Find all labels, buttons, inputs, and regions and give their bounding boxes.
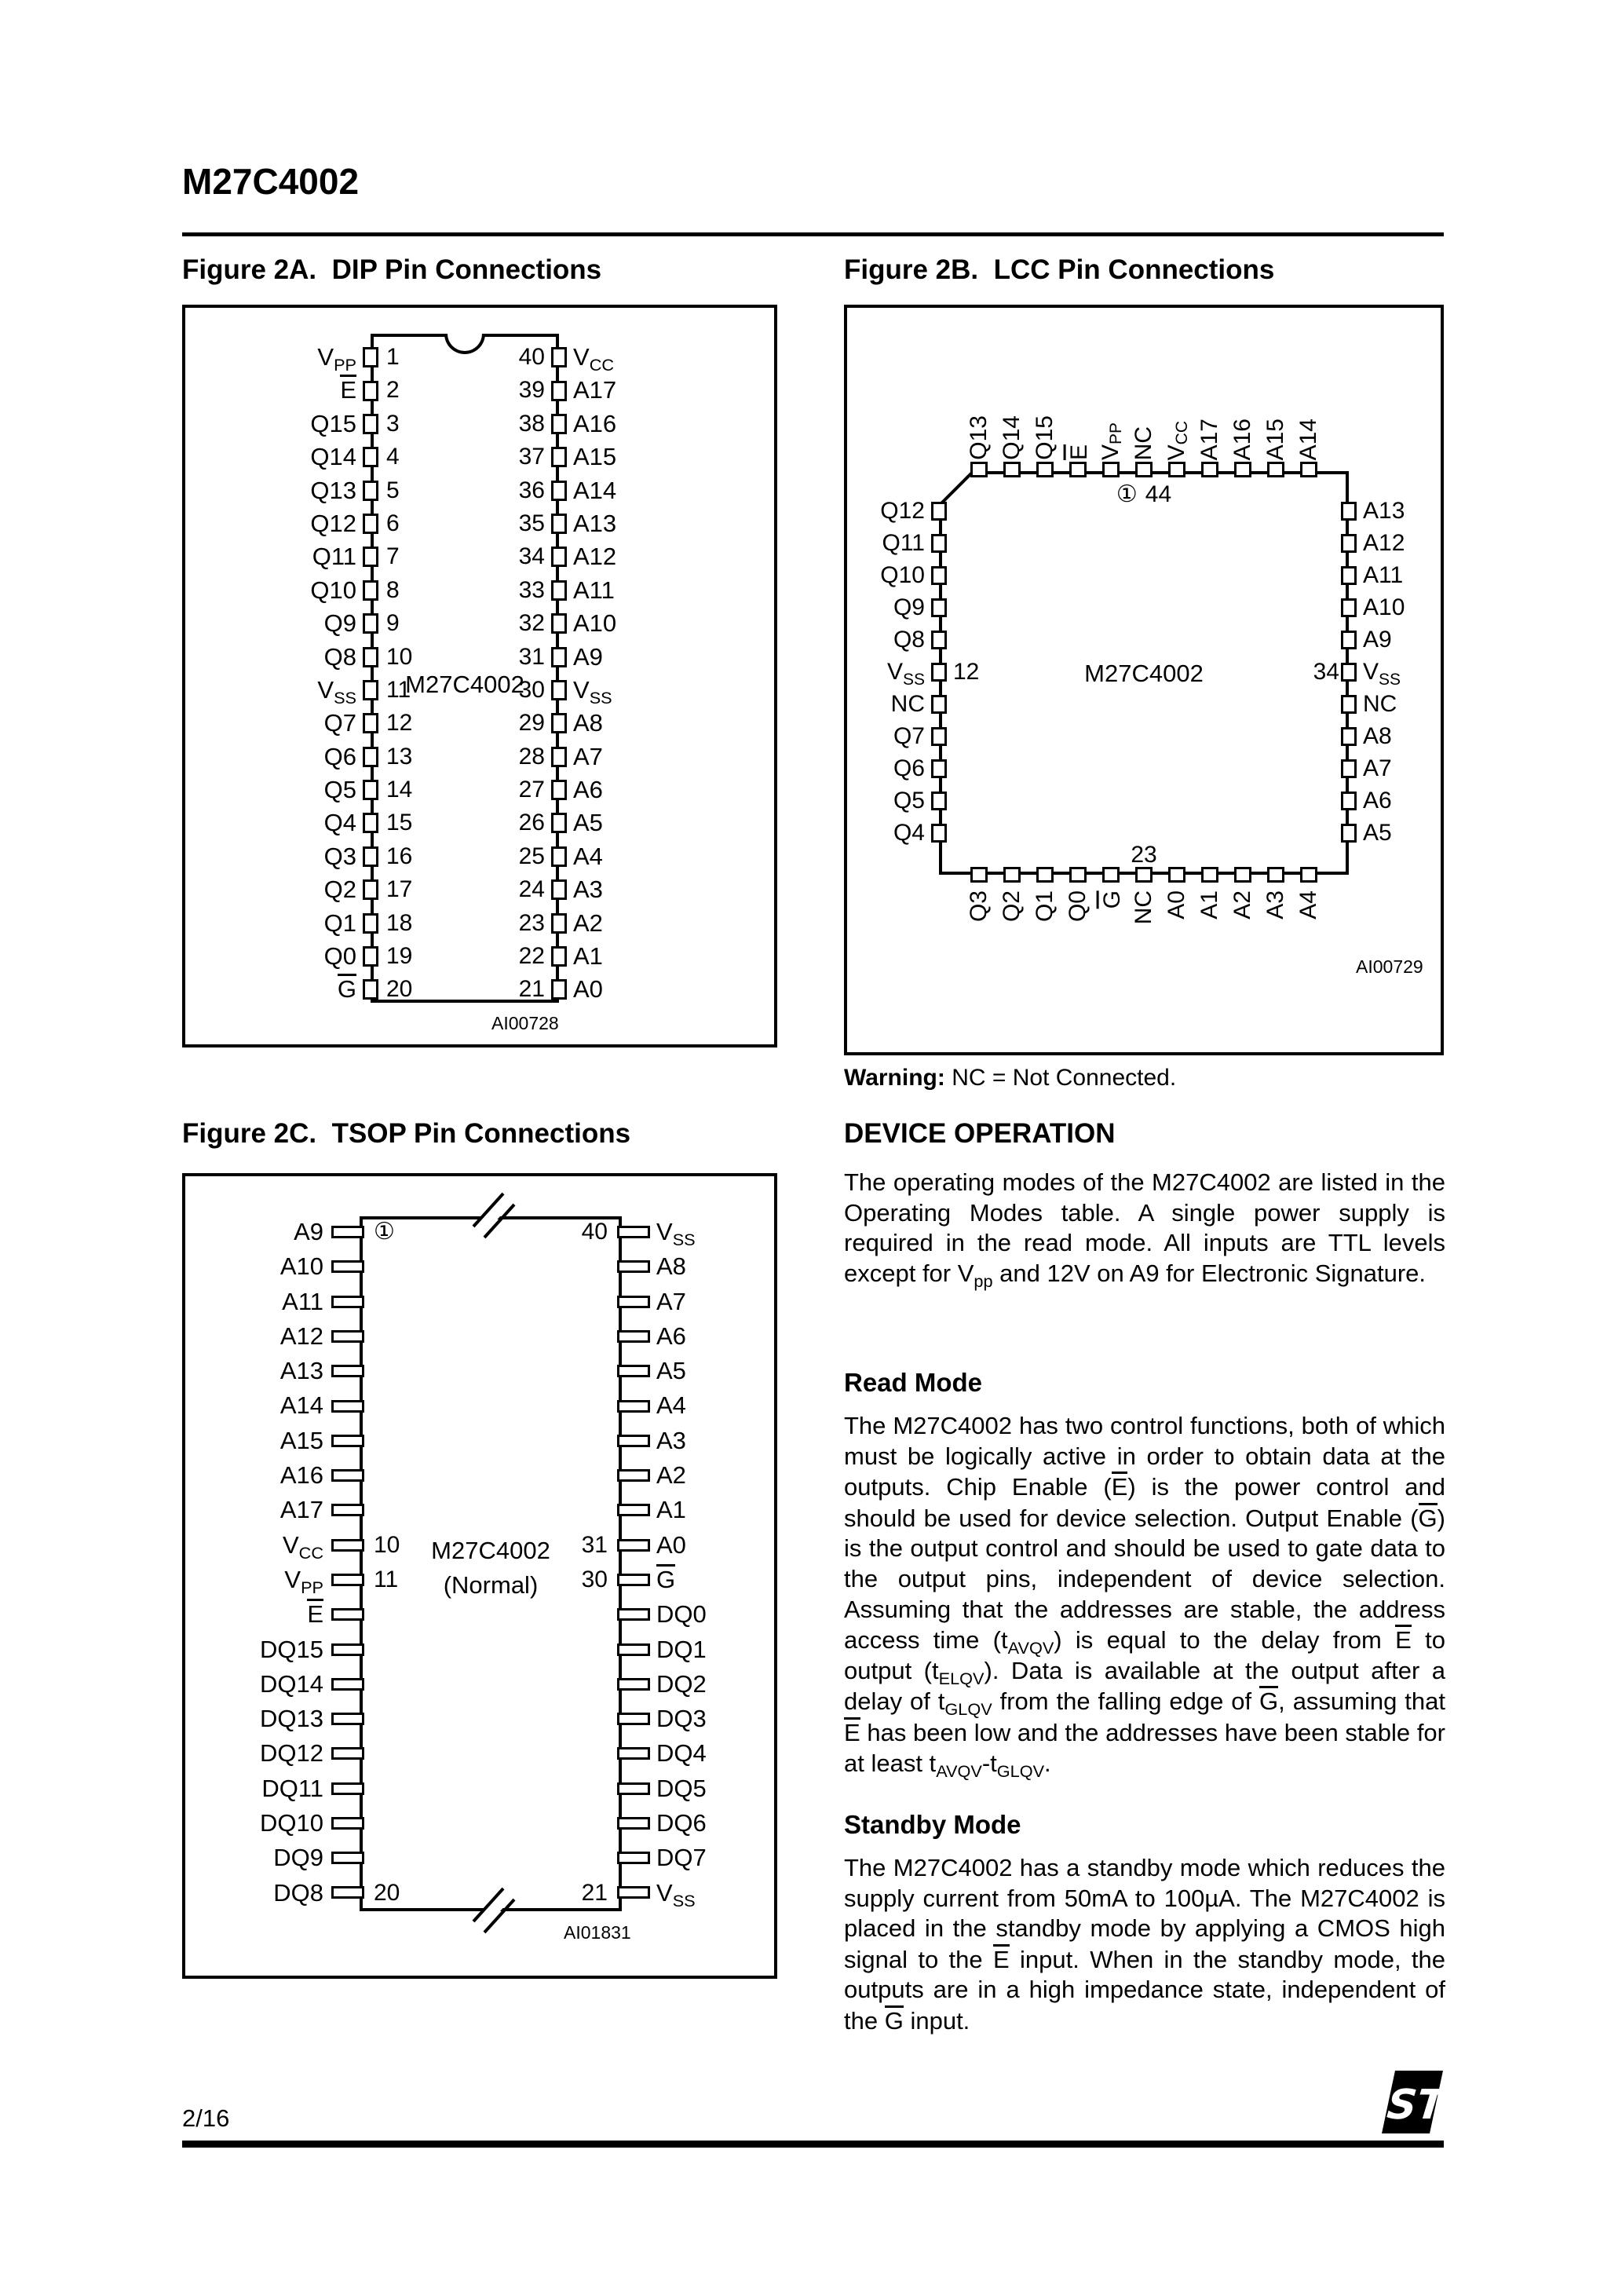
pin-icon (331, 1365, 364, 1377)
lcc-chip-label: M27C4002 (939, 660, 1349, 688)
package-break-icon (444, 1192, 546, 1247)
pin-label: A9 (185, 1215, 323, 1249)
pin-icon (1234, 462, 1251, 477)
figure-2b-title: Figure 2B. LCC Pin Connections (844, 254, 1274, 286)
pin-label: A9 (573, 641, 616, 674)
pin-number: 5 (386, 474, 412, 507)
pin-icon (1102, 867, 1120, 883)
figure-2b-box: Q13Q14Q15EVPPNCVCCA17A16A15A14 ①44 Q12Q1… (844, 305, 1444, 1055)
pin-number (953, 720, 979, 752)
pin-number (557, 1806, 608, 1841)
pin-icon (970, 462, 988, 477)
pin-label: Q15 (1032, 415, 1058, 460)
pin-icon (551, 913, 567, 934)
pin-icon (970, 867, 988, 883)
figure-2c-title: Figure 2C. TSOP Pin Connections (182, 1118, 630, 1150)
pin-label: VPP (185, 341, 356, 374)
pin-icon (1201, 462, 1218, 477)
pin-icon (363, 813, 378, 833)
pin-number (374, 1458, 400, 1493)
pin-label: A4 (656, 1388, 707, 1423)
pin-label: VPP (185, 1563, 323, 1597)
pin-icon (363, 747, 378, 767)
footer-rule (182, 2141, 1444, 2148)
pin-number (557, 1354, 608, 1388)
pin-label: NC (1131, 426, 1156, 460)
pin-number: 16 (386, 840, 412, 873)
pin-label: Q7 (847, 720, 925, 752)
pin-label: A15 (573, 441, 616, 473)
pin-icon (363, 481, 378, 501)
pin-number (557, 1285, 608, 1319)
pin-label: VCC (185, 1528, 323, 1563)
pin-number: 7 (386, 540, 412, 573)
pin-label: Q6 (847, 752, 925, 784)
pin-icon (551, 347, 567, 367)
pin-icon (617, 1643, 650, 1656)
pin-number (557, 1736, 608, 1771)
pin-label: Q14 (185, 441, 356, 473)
pin-label: A8 (656, 1249, 707, 1284)
pin-label: A2 (656, 1458, 707, 1493)
pin-label: DQ8 (185, 1876, 323, 1910)
pin-icon (617, 1852, 650, 1864)
pin-label: Q4 (185, 806, 356, 839)
st-logo-text: ST (1385, 2082, 1443, 2129)
lcc-right-labels: A13A12A11A10A9VSSNCA8A7A6A5 (1363, 495, 1405, 849)
pin-icon (363, 580, 378, 601)
pin-label-slot: A15 (1267, 419, 1284, 460)
pin-number: 37 (493, 441, 545, 473)
pin-number: 40 (493, 341, 545, 374)
pin-number: 35 (493, 507, 545, 540)
pin-icon (363, 613, 378, 634)
pin-number: 6 (386, 507, 412, 540)
pin-label-slot: A16 (1234, 419, 1251, 460)
pin-label: E (1064, 444, 1092, 460)
pin-label: Q13 (185, 474, 356, 507)
pin-label: Q11 (847, 527, 925, 559)
lcc-left-labels: Q12Q11Q10Q9Q8VSSNCQ7Q6Q5Q4 (847, 495, 925, 849)
pin-icon (617, 1886, 650, 1899)
standby-mode-heading: Standby Mode (844, 1810, 1021, 1840)
pin44-number: 44 (1145, 481, 1171, 507)
pin-label: DQ13 (185, 1702, 323, 1736)
pin-number: 28 (493, 740, 545, 773)
pin-number: 38 (493, 408, 545, 441)
pin-number: 26 (493, 806, 545, 839)
pin-label: Q12 (185, 507, 356, 540)
pin-icon (931, 631, 947, 649)
dip-left-labels: VPPEQ15Q14Q13Q12Q11Q10Q9Q8VSSQ7Q6Q5Q4Q3Q… (185, 341, 356, 1007)
pin-label-slot: Q13 (970, 415, 988, 460)
standby-mode-paragraph: The M27C4002 has a standby mode which re… (844, 1853, 1445, 2037)
pin-icon (931, 502, 947, 521)
pin-icon (1036, 462, 1054, 477)
pin-number (374, 1424, 400, 1458)
pin-icon (331, 1852, 364, 1864)
pin-icon (617, 1469, 650, 1482)
dip-right-labels: VCCA17A16A15A14A13A12A11A10A9VSSA8A7A6A5… (573, 341, 616, 1007)
pin-number: 3 (386, 408, 412, 441)
pin-icon (331, 1260, 364, 1273)
pin-label: Q1 (185, 907, 356, 940)
pin-label-slot: VCC (1168, 421, 1185, 460)
lcc-pin1-row: ①44 (939, 481, 1349, 508)
pin-label-slot: VPP (1102, 422, 1120, 460)
pin-number: 15 (386, 806, 412, 839)
pin-label-slot: Q0 (1069, 890, 1087, 922)
pin-label: DQ14 (185, 1667, 323, 1702)
pin-label: A14 (1296, 419, 1321, 460)
pin-number (1295, 623, 1339, 656)
pin-label: A3 (1263, 890, 1288, 919)
pin-number (557, 1667, 608, 1702)
pin-label-slot: A0 (1168, 890, 1185, 919)
pin-number (557, 1632, 608, 1667)
pin-icon (1069, 462, 1087, 477)
pin-number (557, 1458, 608, 1493)
page-number: 2/16 (182, 2104, 229, 2133)
pin-number: 20 (374, 1876, 400, 1910)
pin-label-slot: G (1102, 890, 1120, 909)
pin-number: 13 (386, 740, 412, 773)
pin-label: A7 (656, 1285, 707, 1319)
pin-label: DQ12 (185, 1736, 323, 1771)
pin-number: 40 (557, 1215, 608, 1249)
pin-label: A5 (656, 1354, 707, 1388)
pin-label: A11 (573, 574, 616, 607)
pin-label-slot: NC (1135, 426, 1153, 460)
pin-number (374, 1319, 400, 1354)
pin-label: A4 (573, 840, 616, 873)
pin-label: DQ6 (656, 1806, 707, 1841)
pin-number: 20 (386, 973, 412, 1006)
pin-number (374, 1667, 400, 1702)
pin-label: A16 (1230, 419, 1255, 460)
pin-number (953, 591, 979, 623)
pin-icon (1267, 867, 1284, 883)
pin-icon (617, 1782, 650, 1795)
figure-2a-title: Figure 2A. DIP Pin Connections (182, 254, 601, 286)
pin-label: Q9 (847, 591, 925, 623)
pin-label: A10 (1363, 591, 1405, 623)
tsop-left-labels: A9A10A11A12A13A14A15A16A17VCCVPPEDQ15DQ1… (185, 1215, 323, 1910)
pin-label: A16 (573, 408, 616, 441)
pin-icon (1069, 867, 1087, 883)
pin-label: E (185, 1597, 323, 1632)
pin-label: A12 (573, 540, 616, 573)
pin-icon (931, 534, 947, 553)
pin-label: A5 (573, 806, 616, 839)
warning-note: Warning: NC = Not Connected. (844, 1065, 1176, 1091)
device-operation-heading: DEVICE OPERATION (844, 1118, 1116, 1150)
pin-label: A17 (573, 374, 616, 407)
pin-label: Q10 (185, 574, 356, 607)
pin-label: Q8 (847, 623, 925, 656)
pin-label: A6 (656, 1319, 707, 1354)
pin-icon (1135, 462, 1153, 477)
pin-icon (617, 1435, 650, 1447)
pin-number (557, 1702, 608, 1736)
pin-icon (1300, 867, 1317, 883)
pin-label: A6 (1363, 784, 1405, 817)
pin-number: 14 (386, 773, 412, 806)
pin-label-slot: E (1069, 444, 1087, 460)
pin-number (953, 527, 979, 559)
read-mode-paragraph: The M27C4002 has two control functions, … (844, 1411, 1445, 1779)
package-break-icon (444, 1887, 546, 1942)
pin-label: A3 (656, 1424, 707, 1458)
pin-label: E (185, 374, 356, 407)
pin-icon (331, 1782, 364, 1795)
pin-icon (551, 813, 567, 833)
pin-number: 10 (386, 641, 412, 674)
pin-icon (617, 1747, 650, 1760)
pin-icon (931, 824, 947, 843)
pin-label: A8 (573, 707, 616, 740)
pin-label: VSS (656, 1215, 707, 1249)
pin-label: Q7 (185, 707, 356, 740)
pin-label: A0 (573, 973, 616, 1006)
pin-icon (363, 946, 378, 967)
pin-label: Q2 (185, 873, 356, 906)
pin-number: 27 (493, 773, 545, 806)
device-operation-intro: The operating modes of the M27C4002 are … (844, 1168, 1445, 1289)
pin-icon (331, 1400, 364, 1413)
pin-label: DQ9 (185, 1841, 323, 1875)
pin-label: A0 (1164, 890, 1189, 919)
pin-icon (331, 1817, 364, 1830)
figure-2c-code: AI01831 (564, 1922, 631, 1943)
pin-icon (1341, 695, 1357, 714)
pin-label: Q10 (847, 559, 925, 591)
pin-label: Q5 (847, 784, 925, 817)
pin-label: A13 (573, 507, 616, 540)
pin-label: A11 (1363, 559, 1405, 591)
tsop-chip-label-line2: (Normal) (360, 1568, 622, 1603)
figure-2b-code: AI00729 (1356, 956, 1423, 978)
pin-number (374, 1806, 400, 1841)
pin-icon (617, 1539, 650, 1552)
figure-2a-box: VPPEQ15Q14Q13Q12Q11Q10Q9Q8VSSQ7Q6Q5Q4Q3Q… (182, 305, 777, 1047)
lcc-top-labels: Q13Q14Q15EVPPNCVCCA17A16A15A14 (970, 333, 1317, 460)
pin-icon (363, 647, 378, 667)
pin-number: 23 (493, 907, 545, 940)
lcc-bottom-pins (970, 867, 1317, 883)
pin-label: A15 (185, 1424, 323, 1458)
pin-icon (363, 913, 378, 934)
lcc-bottom-labels: Q3Q2Q1Q0GNCA0A1A2A3A4 (970, 890, 1317, 924)
pin-icon (617, 1574, 650, 1586)
pin-number: 31 (493, 641, 545, 674)
pin-label: A0 (656, 1528, 707, 1563)
pin-number: 21 (557, 1876, 608, 1910)
pin-label: A14 (185, 1388, 323, 1423)
pin-icon (617, 1296, 650, 1308)
pin-label: Q0 (185, 940, 356, 973)
pin-number (953, 784, 979, 817)
pin-icon (617, 1260, 650, 1273)
pin-label: Q9 (185, 607, 356, 640)
pin-label-slot: NC (1135, 890, 1153, 924)
pin-number: 36 (493, 474, 545, 507)
pin-icon (931, 566, 947, 585)
pin-number: 34 (493, 540, 545, 573)
pin-label: NC (1131, 890, 1156, 924)
pin-icon (331, 1678, 364, 1691)
pin-number: 29 (493, 707, 545, 740)
pin-icon (931, 598, 947, 617)
pin-label: A5 (1363, 817, 1405, 849)
pin-icon (363, 846, 378, 867)
pin-label: Q5 (185, 773, 356, 806)
dip-pin1-notch-icon (444, 334, 485, 354)
header-rule (182, 232, 1444, 236)
pin-number (953, 495, 979, 527)
pin-icon (331, 1504, 364, 1516)
pin-icon (617, 1504, 650, 1516)
pin-number (1295, 591, 1339, 623)
pin-icon (551, 547, 567, 567)
pin-label: Q15 (185, 408, 356, 441)
tsop-right-labels: VSSA8A7A6A5A4A3A2A1A0GDQ0DQ1DQ2DQ3DQ4DQ5… (656, 1215, 707, 1910)
pin-number (1295, 752, 1339, 784)
pin-label: Q6 (185, 740, 356, 773)
pin-number (557, 1841, 608, 1875)
pin-label: Q2 (999, 890, 1025, 922)
pin-label: VSS (847, 656, 925, 688)
pin-number: 24 (493, 873, 545, 906)
pin-label-slot: Q14 (1003, 415, 1021, 460)
pin-label: A10 (573, 607, 616, 640)
pin-number (374, 1702, 400, 1736)
pin-icon (1201, 867, 1218, 883)
pin-number (1295, 495, 1339, 527)
pin-number (953, 688, 979, 720)
pin-label: DQ7 (656, 1841, 707, 1875)
pin-label: DQ3 (656, 1702, 707, 1736)
lcc-top-pins (970, 462, 1317, 477)
pin-label: VPP (1098, 422, 1123, 460)
pin-label: A13 (185, 1354, 323, 1388)
pin-icon (1341, 824, 1357, 843)
pin-icon (363, 780, 378, 800)
st-logo: ST (1382, 2068, 1443, 2136)
pin-label: NC (847, 688, 925, 720)
pin-label: VSS (185, 674, 356, 707)
pin-icon (551, 580, 567, 601)
pin-icon (363, 514, 378, 534)
pin-icon (551, 747, 567, 767)
pin-icon (1168, 462, 1185, 477)
figure-2c-box: A9A10A11A12A13A14A15A16A17VCCVPPEDQ15DQ1… (182, 1173, 777, 1979)
pin-icon (1168, 867, 1185, 883)
pin-number (374, 1841, 400, 1875)
pin-icon (617, 1400, 650, 1413)
pin-label: G (656, 1563, 707, 1597)
pin-icon (931, 759, 947, 778)
pin-icon (1341, 727, 1357, 746)
pin-number (557, 1424, 608, 1458)
pin-number: 19 (386, 940, 412, 973)
pin-label: Q11 (185, 540, 356, 573)
pin-icon (617, 1608, 650, 1621)
pin-number: 32 (493, 607, 545, 640)
pin-icon (1267, 462, 1284, 477)
pin-label: A14 (573, 474, 616, 507)
pin-label: A1 (573, 940, 616, 973)
pin-label: VSS (656, 1876, 707, 1910)
pin-number: 9 (386, 607, 412, 640)
pin-icon (551, 946, 567, 967)
pin-label: G (1097, 890, 1125, 909)
pin-icon (931, 792, 947, 810)
pin-icon (1102, 462, 1120, 477)
pin-label: A12 (1363, 527, 1405, 559)
pin-label: A10 (185, 1249, 323, 1284)
pin-icon (1341, 566, 1357, 585)
pin-number (374, 1388, 400, 1423)
pin-label: A4 (1296, 890, 1321, 919)
pin-icon (363, 414, 378, 434)
pin-icon (1300, 462, 1317, 477)
pin-label: DQ4 (656, 1736, 707, 1771)
pin-number: 8 (386, 574, 412, 607)
pin-label: A13 (1363, 495, 1405, 527)
pin-label: A15 (1263, 419, 1288, 460)
pin-icon (331, 1330, 364, 1343)
pin-label: A17 (185, 1493, 323, 1527)
pin-icon (551, 613, 567, 634)
pin-number (953, 623, 979, 656)
pin-label: Q14 (999, 415, 1025, 460)
pin-icon (551, 447, 567, 467)
pin-number (374, 1354, 400, 1388)
pin-label: VSS (573, 674, 616, 707)
pin-label: DQ0 (656, 1597, 707, 1632)
pin-number (953, 559, 979, 591)
pin-icon (331, 1713, 364, 1725)
pin-label: NC (1363, 688, 1405, 720)
warning-label: Warning: (844, 1065, 945, 1091)
pin-icon (617, 1817, 650, 1830)
pin-number: 39 (493, 374, 545, 407)
pin-icon (551, 514, 567, 534)
pin-number (1295, 688, 1339, 720)
pin-label: A6 (573, 773, 616, 806)
pin-icon (331, 1226, 364, 1238)
pin-label-slot: A4 (1300, 890, 1317, 919)
pin-label: Q3 (185, 840, 356, 873)
pin-number: 25 (493, 840, 545, 873)
pin-label: Q4 (847, 817, 925, 849)
pin-label: G (185, 973, 356, 1006)
pin-icon (1341, 534, 1357, 553)
pin-label-slot: Q15 (1036, 415, 1054, 460)
pin-label-slot: Q1 (1036, 890, 1054, 922)
pin-label: A1 (656, 1493, 707, 1527)
pin-icon (363, 979, 378, 1000)
pin-number (374, 1249, 400, 1284)
pin-icon (931, 727, 947, 746)
pin-label: A11 (185, 1285, 323, 1319)
pin-icon (331, 1435, 364, 1447)
pin-label-slot: Q3 (970, 890, 988, 922)
pin-label: VCC (1164, 421, 1189, 460)
pin-icon (1341, 792, 1357, 810)
pin-icon (551, 879, 567, 900)
